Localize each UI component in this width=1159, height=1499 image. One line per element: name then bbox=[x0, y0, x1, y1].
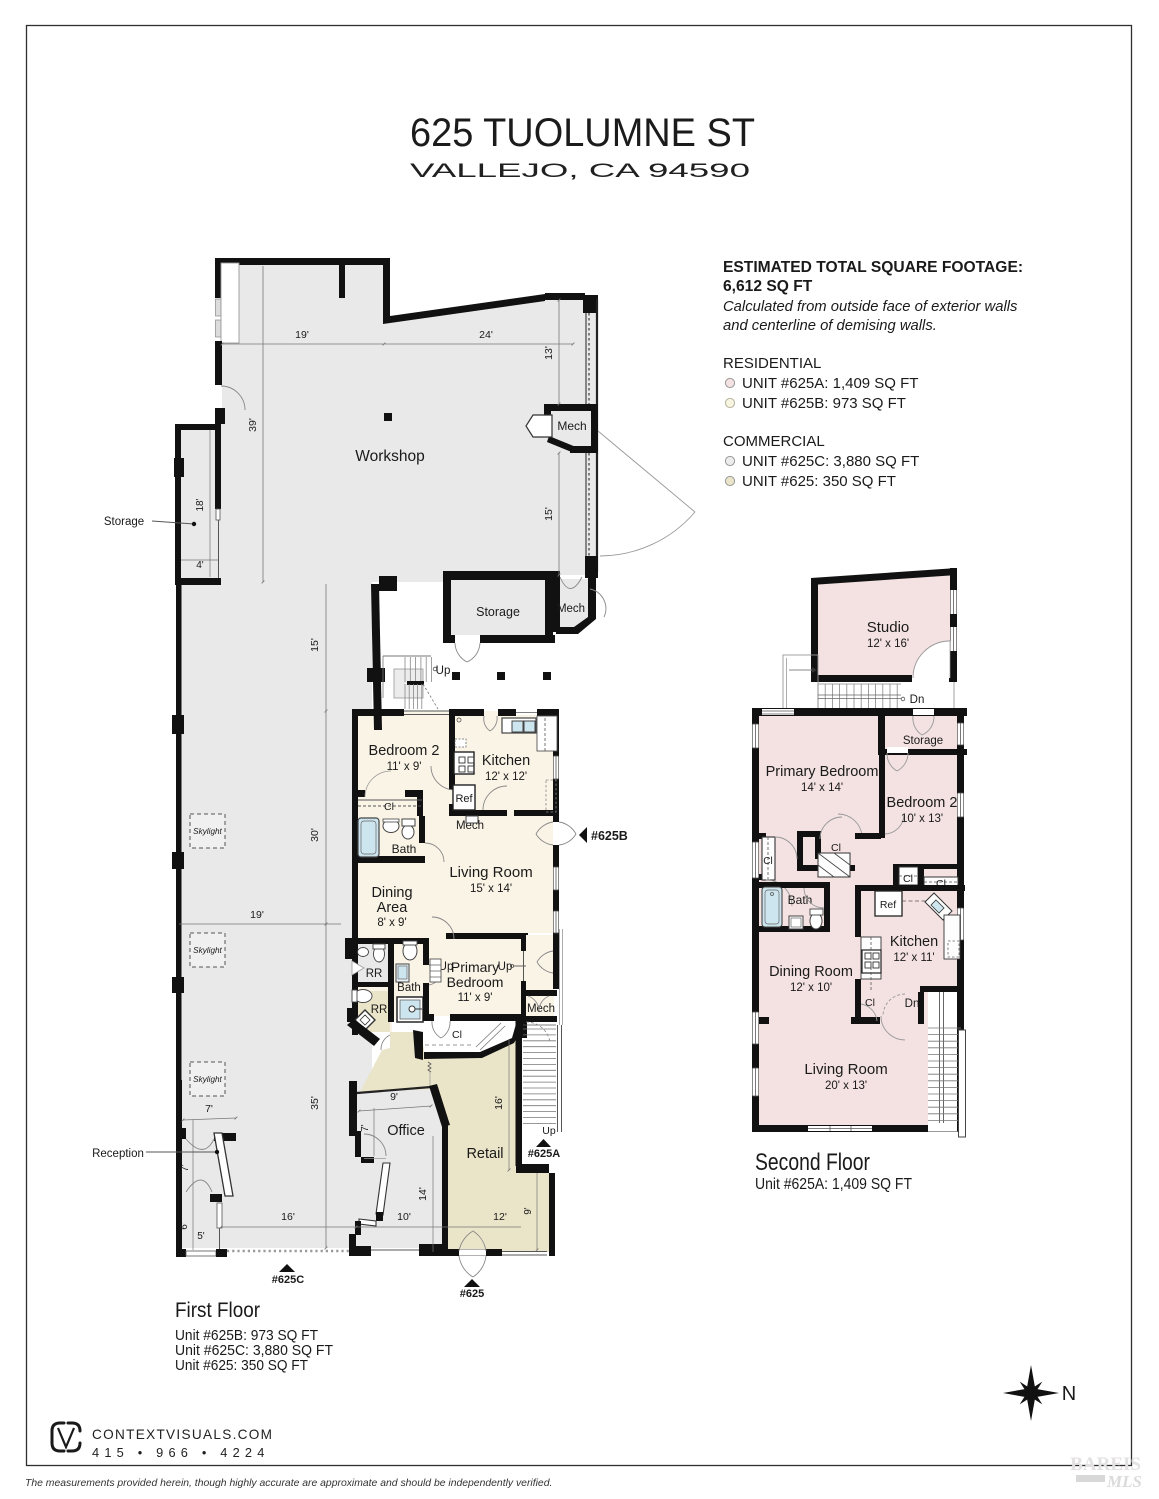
svg-text:415 • 966 • 4224: 415 • 966 • 4224 bbox=[92, 1445, 270, 1460]
svg-text:13': 13' bbox=[543, 346, 555, 360]
svg-text:24': 24' bbox=[479, 329, 493, 341]
svg-text:Up: Up bbox=[436, 665, 451, 677]
svg-text:Skylight: Skylight bbox=[193, 827, 222, 836]
svg-text:MLS: MLS bbox=[1106, 1472, 1142, 1491]
svg-text:Cl: Cl bbox=[903, 873, 913, 885]
svg-text:Up: Up bbox=[498, 961, 513, 973]
svg-text:RR: RR bbox=[366, 968, 383, 980]
svg-text:18': 18' bbox=[195, 498, 206, 511]
svg-text:9': 9' bbox=[523, 1207, 534, 1215]
svg-text:#625B: #625B bbox=[591, 829, 628, 843]
svg-text:11' x 9': 11' x 9' bbox=[387, 761, 422, 773]
svg-text:6': 6' bbox=[179, 1222, 190, 1230]
svg-text:First Floor: First Floor bbox=[175, 1299, 260, 1322]
svg-text:Skylight: Skylight bbox=[193, 946, 222, 955]
svg-text:Kitchen: Kitchen bbox=[890, 934, 938, 950]
svg-text:Storage: Storage bbox=[903, 735, 943, 747]
svg-text:7': 7' bbox=[360, 1124, 371, 1132]
svg-text:Unit #625: 350 SQ FT: Unit #625: 350 SQ FT bbox=[175, 1357, 308, 1374]
svg-text:19': 19' bbox=[250, 909, 264, 921]
svg-text:UNIT #625A: 1,409 SQ FT: UNIT #625A: 1,409 SQ FT bbox=[742, 375, 918, 392]
svg-text:Bedroom: Bedroom bbox=[447, 974, 504, 990]
svg-text:Dining: Dining bbox=[371, 885, 412, 901]
svg-text:39': 39' bbox=[247, 418, 259, 432]
svg-text:15' x 14': 15' x 14' bbox=[470, 883, 512, 895]
svg-text:15': 15' bbox=[543, 507, 555, 521]
svg-text:12' x 12': 12' x 12' bbox=[485, 771, 527, 783]
svg-text:UNIT #625B: 973 SQ FT: UNIT #625B: 973 SQ FT bbox=[742, 395, 906, 412]
svg-text:Office: Office bbox=[387, 1123, 425, 1139]
svg-text:Bedroom 2: Bedroom 2 bbox=[887, 795, 958, 811]
svg-text:Mech: Mech bbox=[557, 419, 586, 433]
svg-text:5': 5' bbox=[197, 1231, 205, 1242]
svg-text:Bath: Bath bbox=[392, 842, 417, 856]
svg-text:14' x 14': 14' x 14' bbox=[801, 782, 843, 794]
svg-text:Dn: Dn bbox=[905, 998, 920, 1010]
svg-text:12': 12' bbox=[493, 1211, 507, 1223]
svg-text:Bath: Bath bbox=[397, 982, 421, 994]
svg-text:UNIT #625C: 3,880 SQ FT: UNIT #625C: 3,880 SQ FT bbox=[742, 453, 919, 470]
svg-text:Workshop: Workshop bbox=[355, 448, 425, 465]
svg-text:Storage: Storage bbox=[476, 605, 520, 619]
svg-text:Up: Up bbox=[542, 1125, 556, 1137]
svg-text:Calculated from outside face o: Calculated from outside face of exterior… bbox=[723, 299, 1018, 315]
svg-text:Primary: Primary bbox=[451, 959, 499, 975]
svg-text:Cl: Cl bbox=[865, 997, 875, 1009]
svg-text:Storage: Storage bbox=[104, 516, 144, 528]
svg-text:Dn: Dn bbox=[910, 694, 925, 706]
svg-text:Unit #625A: 1,409 SQ FT: Unit #625A: 1,409 SQ FT bbox=[755, 1176, 912, 1193]
svg-text:Studio: Studio bbox=[867, 619, 910, 636]
svg-text:RR: RR bbox=[371, 1004, 388, 1016]
svg-text:625 TUOLUMNE ST: 625 TUOLUMNE ST bbox=[410, 111, 755, 155]
svg-text:#625: #625 bbox=[460, 1288, 484, 1300]
svg-text:7': 7' bbox=[205, 1103, 213, 1115]
svg-text:35': 35' bbox=[309, 1096, 321, 1110]
svg-text:12' x 11': 12' x 11' bbox=[893, 952, 934, 964]
svg-text:Area: Area bbox=[377, 900, 409, 916]
svg-text:Cl: Cl bbox=[452, 1029, 462, 1041]
svg-text:RESIDENTIAL: RESIDENTIAL bbox=[723, 355, 821, 372]
svg-text:Second Floor: Second Floor bbox=[755, 1149, 870, 1176]
svg-text:20' x 13': 20' x 13' bbox=[825, 1080, 867, 1092]
svg-text:The measurements provided here: The measurements provided herein, though… bbox=[25, 1478, 552, 1489]
svg-text:4': 4' bbox=[196, 560, 204, 571]
svg-text:CONTEXTVISUALS.COM: CONTEXTVISUALS.COM bbox=[92, 1427, 273, 1442]
svg-text:6,612 SQ FT: 6,612 SQ FT bbox=[723, 278, 813, 295]
svg-text:Ref: Ref bbox=[455, 793, 473, 805]
svg-text:Primary Bedroom: Primary Bedroom bbox=[766, 764, 879, 780]
svg-text:16': 16' bbox=[281, 1211, 295, 1223]
svg-text:Kitchen: Kitchen bbox=[482, 753, 530, 769]
svg-text:12' x 16': 12' x 16' bbox=[867, 638, 909, 650]
svg-text:Cl: Cl bbox=[831, 842, 841, 854]
svg-text:#625A: #625A bbox=[528, 1148, 560, 1160]
svg-text:VALLEJO, CA 94590: VALLEJO, CA 94590 bbox=[410, 160, 750, 182]
svg-text:12' x 10': 12' x 10' bbox=[790, 982, 832, 994]
svg-text:10' x 13': 10' x 13' bbox=[901, 813, 943, 825]
svg-text:Skylight: Skylight bbox=[193, 1075, 222, 1084]
svg-text:Mech: Mech bbox=[527, 1003, 555, 1015]
svg-text:N: N bbox=[1062, 1383, 1076, 1405]
svg-text:11' x 9': 11' x 9' bbox=[458, 992, 493, 1004]
svg-text:Retail: Retail bbox=[466, 1146, 503, 1162]
svg-text:COMMERCIAL: COMMERCIAL bbox=[723, 433, 825, 450]
svg-text:9': 9' bbox=[390, 1091, 398, 1103]
svg-text:Dining Room: Dining Room bbox=[769, 964, 853, 980]
svg-text:15': 15' bbox=[309, 638, 321, 652]
svg-text:7': 7' bbox=[180, 1164, 191, 1172]
svg-text:Bath: Bath bbox=[788, 893, 813, 907]
svg-text:19': 19' bbox=[295, 329, 309, 341]
svg-text:Cl: Cl bbox=[384, 801, 394, 813]
svg-text:10': 10' bbox=[397, 1211, 411, 1223]
svg-text:14': 14' bbox=[417, 1187, 429, 1201]
svg-text:16': 16' bbox=[493, 1096, 505, 1110]
svg-text:Reception: Reception bbox=[92, 1148, 144, 1160]
svg-text:Living Room: Living Room bbox=[449, 864, 532, 881]
svg-text:8' x 9': 8' x 9' bbox=[377, 917, 406, 929]
svg-text:30': 30' bbox=[309, 828, 321, 842]
svg-text:ESTIMATED TOTAL SQUARE FOOTAGE: ESTIMATED TOTAL SQUARE FOOTAGE: bbox=[723, 259, 1023, 276]
svg-text:UNIT #625: 350 SQ FT: UNIT #625: 350 SQ FT bbox=[742, 473, 896, 490]
svg-text:Bedroom 2: Bedroom 2 bbox=[369, 743, 440, 759]
svg-text:and centerline of demising wal: and centerline of demising walls. bbox=[723, 318, 937, 334]
svg-text:Ref: Ref bbox=[880, 899, 896, 911]
svg-text:Mech: Mech bbox=[557, 603, 585, 615]
svg-text:#625C: #625C bbox=[272, 1274, 304, 1286]
svg-text:Cl: Cl bbox=[763, 856, 772, 867]
svg-text:Living Room: Living Room bbox=[804, 1061, 887, 1078]
